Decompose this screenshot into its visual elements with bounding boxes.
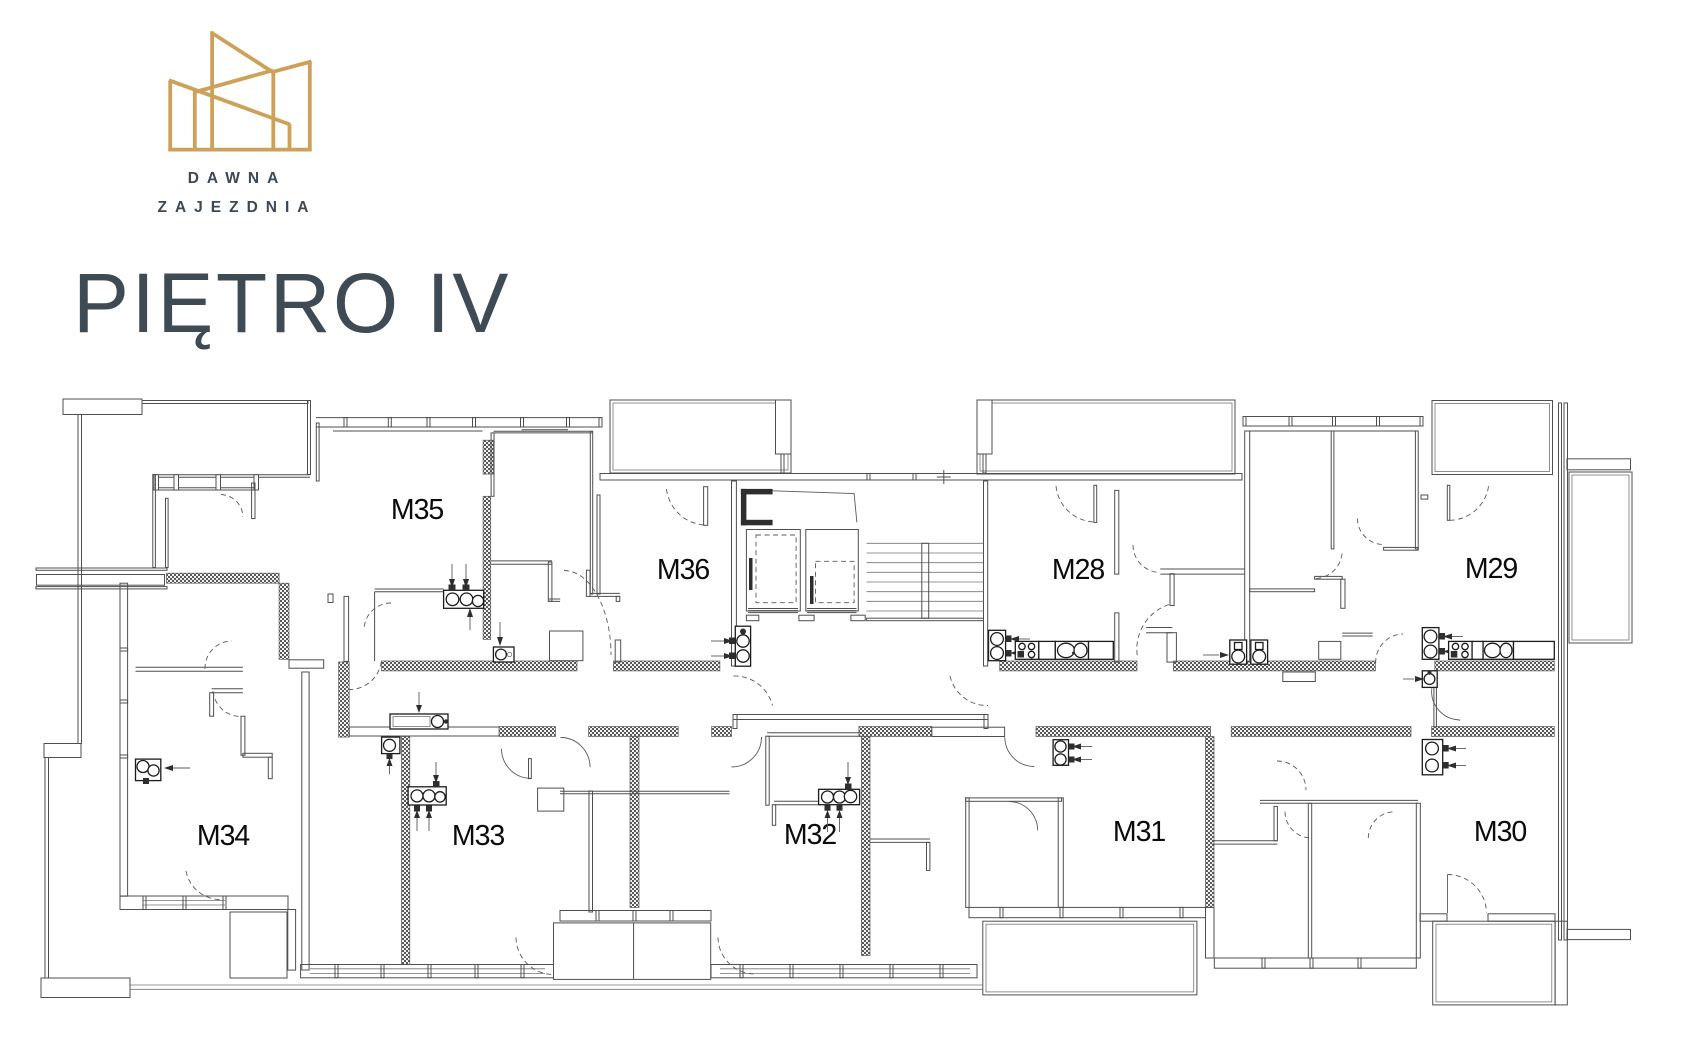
svg-text:M28: M28 [1052, 554, 1104, 586]
svg-text:M31: M31 [1113, 816, 1165, 848]
svg-text:M36: M36 [657, 554, 709, 586]
svg-text:DAWNA: DAWNA [188, 170, 287, 187]
svg-text:M30: M30 [1474, 816, 1526, 848]
svg-text:M34: M34 [197, 820, 250, 852]
svg-text:M32: M32 [784, 819, 836, 851]
svg-text:ZAJEZDNIA: ZAJEZDNIA [158, 199, 317, 216]
svg-text:PIĘTRO IV: PIĘTRO IV [73, 256, 511, 350]
svg-text:M29: M29 [1465, 553, 1517, 585]
svg-text:M35: M35 [391, 494, 443, 526]
svg-text:M33: M33 [452, 820, 504, 852]
